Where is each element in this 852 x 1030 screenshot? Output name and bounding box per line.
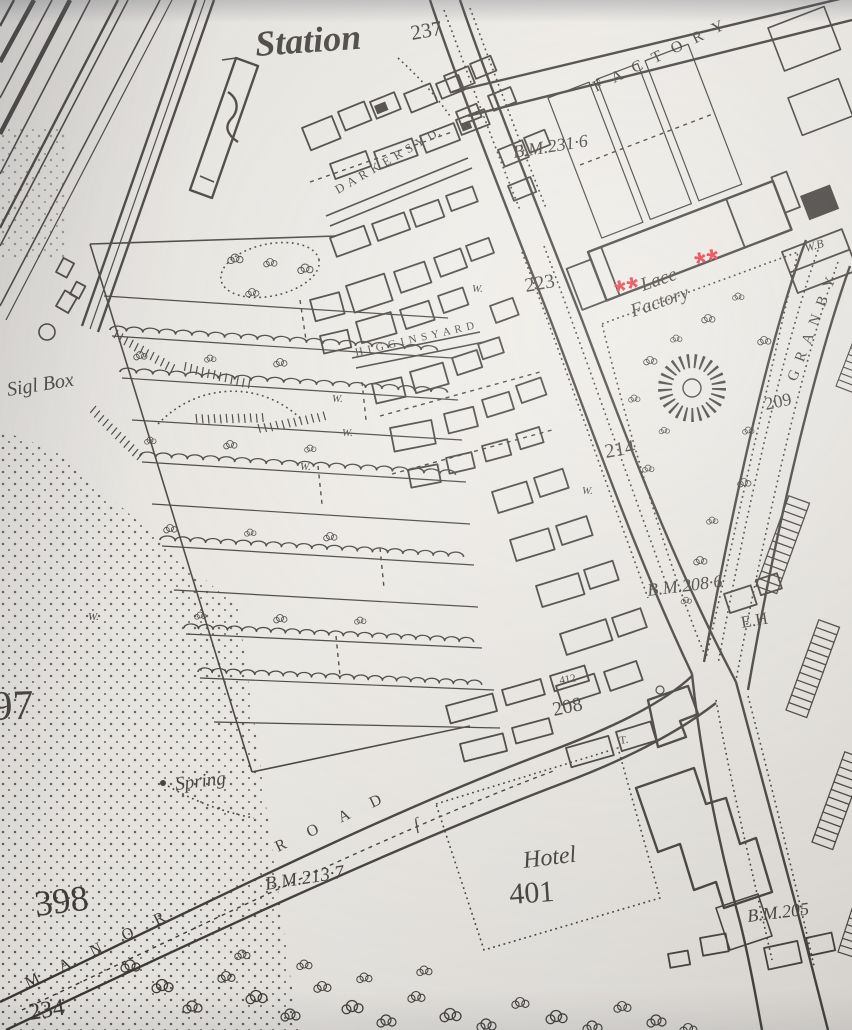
label-well: W. xyxy=(582,485,593,497)
hotel-buildings xyxy=(636,768,772,968)
station-orchard xyxy=(216,234,325,306)
map-svg: Station 237 F A C T O R Y B.M.231·6 D A … xyxy=(0,0,852,1030)
label-well: W. xyxy=(332,393,343,405)
label-bm-208: B.M.208·6 xyxy=(646,571,723,600)
label-223: 223 xyxy=(523,270,556,297)
label-398: 398 xyxy=(32,878,90,924)
label-eh: E.H xyxy=(739,609,769,632)
garden-shrubs xyxy=(629,293,771,604)
roadside-buildings xyxy=(446,469,698,767)
label-well: W. xyxy=(88,611,99,623)
label-214: 214 xyxy=(603,436,636,463)
mound-outline xyxy=(158,391,302,424)
label-bm-231: B.M.231·6 xyxy=(511,130,589,162)
label-well: W. xyxy=(342,427,353,439)
label-long-s: ſ xyxy=(411,814,424,834)
label-209: 209 xyxy=(763,389,794,414)
label-t-mark: T. xyxy=(619,734,629,747)
label-wb: W.B xyxy=(803,236,826,255)
label-401: 401 xyxy=(508,875,555,911)
label-208: 208 xyxy=(550,693,584,721)
label-road: R O A D xyxy=(273,787,394,855)
label-well: W. xyxy=(472,283,483,295)
red-asterisk-annotation: ** xyxy=(692,243,725,281)
label-hotel: Hotel xyxy=(521,842,578,874)
label-97: 97 xyxy=(0,683,34,730)
signal-box xyxy=(39,290,77,340)
label-234: 234 xyxy=(27,995,67,1026)
label-well: W. xyxy=(300,461,311,473)
label-237: 237 xyxy=(409,16,444,45)
circular-radial-feature xyxy=(665,361,719,415)
village-buildings xyxy=(302,56,552,488)
map-photo: Station 237 F A C T O R Y B.M.231·6 D A … xyxy=(0,0,852,1030)
label-station: Station xyxy=(254,17,363,64)
label-signal-box: Sigl Box xyxy=(5,369,75,401)
